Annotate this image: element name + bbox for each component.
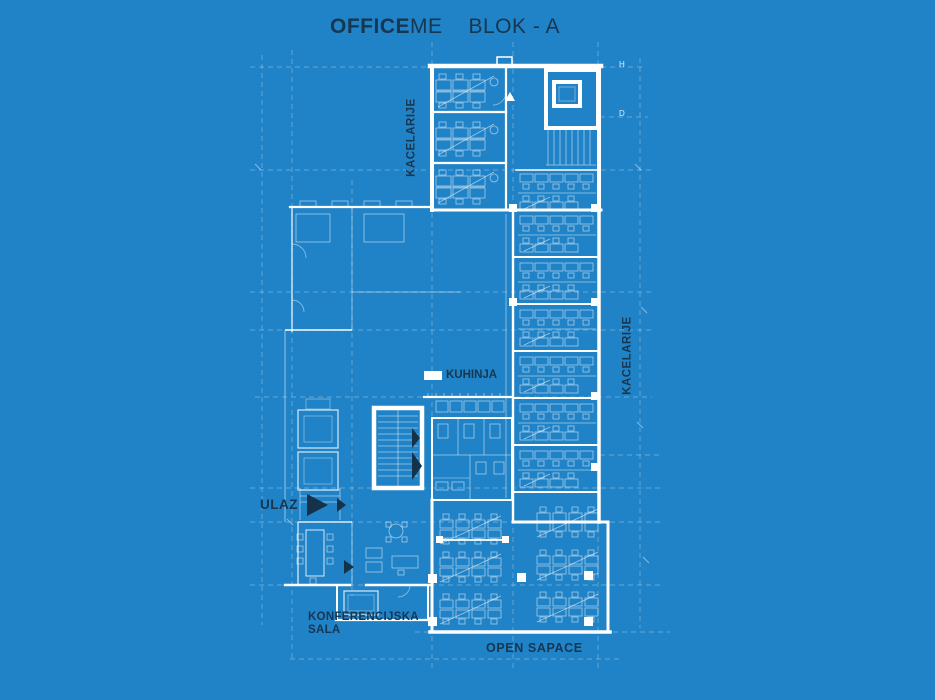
brand-name-bold: OFFICE: [330, 15, 410, 38]
kitchen-area: [424, 393, 513, 412]
page-title: OFFICEMEBLOK - A: [330, 15, 560, 39]
label-kitchen-wrap: KUHINJA: [424, 369, 497, 382]
faint-room-outlines: [296, 214, 404, 242]
label-offices-right: KACELARIJE: [621, 308, 634, 404]
label-entrance: ULAZ: [260, 497, 298, 513]
floor-plan-drawing: [0, 0, 935, 700]
stairwell-top: [546, 70, 598, 165]
stair-treads: [546, 130, 596, 165]
label-offices-top: KACELARIJE: [405, 90, 418, 186]
entrance-arrow-small-icon: [337, 498, 346, 512]
conference-area: [285, 522, 432, 620]
right-office-wing: [506, 170, 600, 522]
kitchen-counter: [428, 393, 504, 412]
small-office-furniture: [366, 522, 418, 575]
block-name: BLOK - A: [469, 15, 561, 38]
blueprint-page: OFFICEMEBLOK - A KACELARIJE KACELARIJE K…: [0, 0, 935, 700]
kitchen-label-marker: [424, 371, 442, 380]
brand-name-regular: ME: [410, 15, 443, 38]
entrance-label-wrap: ULAZ: [260, 494, 346, 516]
meeting-table: [306, 530, 324, 576]
entrance-arrow-icon: [307, 494, 328, 516]
label-conference-room: KONFERENCIJSKA SALA: [308, 611, 419, 637]
top-office-block: [430, 57, 601, 210]
open-space-block: [428, 500, 610, 632]
elevator-shaft: [554, 82, 580, 106]
left-elevator-shafts: [298, 399, 338, 490]
grid-axis-label-d: D: [619, 109, 625, 118]
stairwell-middle: [374, 408, 422, 488]
label-open-space: OPEN SAPACE: [486, 641, 583, 655]
stair-direction-wedge: [412, 428, 420, 448]
grid-axis-label-h: H: [619, 60, 625, 69]
label-kitchen: KUHINJA: [446, 369, 497, 382]
